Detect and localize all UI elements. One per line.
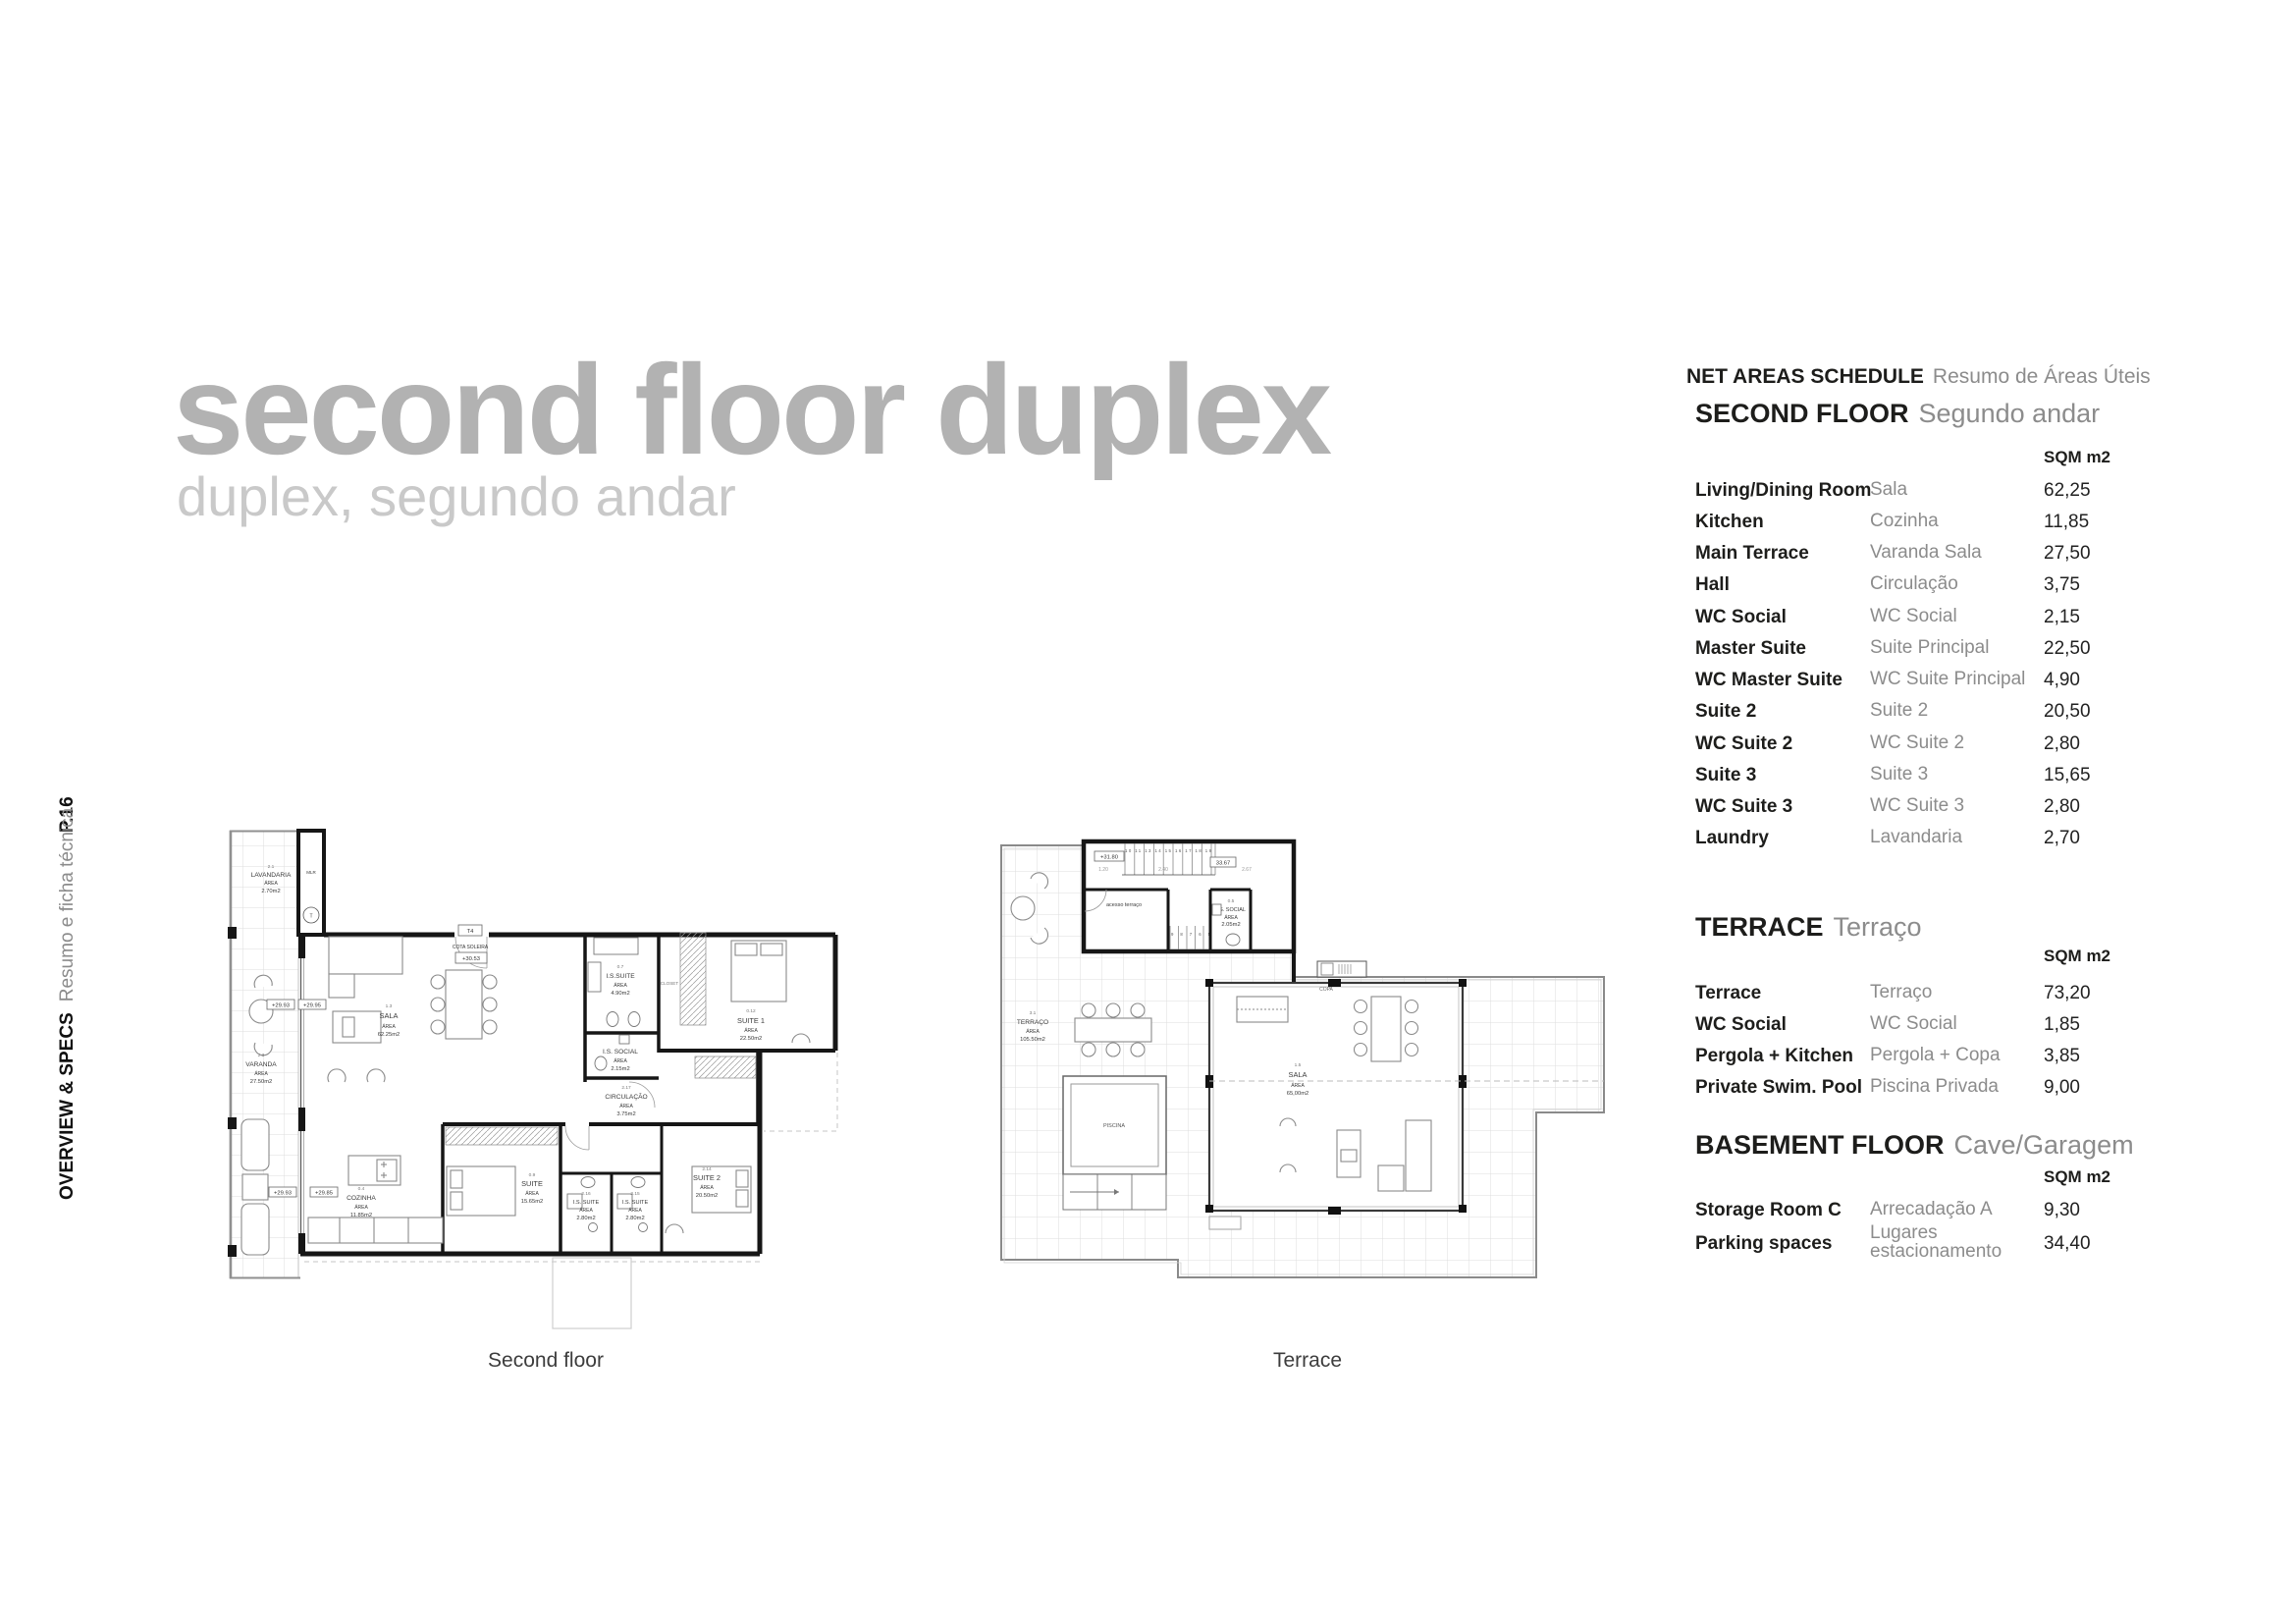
row-value: 3,75 — [2044, 574, 2080, 596]
row-label-en: Kitchen — [1695, 512, 1764, 533]
row-label-en: Suite 3 — [1695, 765, 1756, 786]
room-code: 0.4 — [358, 1186, 365, 1192]
room-area-word: ÁREA — [354, 1204, 368, 1211]
room-code: 3.1 — [1030, 1010, 1037, 1016]
table-row: Pergola + KitchenPergola + Copa3,85 — [1695, 1046, 2132, 1069]
table-row: WC Suite 3WC Suite 32,80 — [1695, 796, 2132, 820]
room-area-word: ÁREA — [614, 1057, 627, 1064]
plan-caption-second-floor: Second floor — [222, 1349, 870, 1373]
drain — [589, 1223, 598, 1232]
armchair — [367, 1069, 385, 1082]
room-code: 0.12 — [746, 1008, 756, 1014]
room-code: 2.15 — [630, 1191, 640, 1197]
row-value: 9,00 — [2044, 1077, 2080, 1099]
level-mark: +29.93 — [274, 1191, 292, 1197]
lounger — [241, 1119, 269, 1170]
section-title-pt: Terraço — [1834, 912, 1922, 942]
room-area-value: 62.25m2 — [378, 1032, 400, 1038]
room-area-value: 4.90m2 — [611, 991, 629, 997]
row-value: 22,50 — [2044, 638, 2091, 660]
sideboard — [333, 1011, 381, 1043]
dining-table — [446, 970, 482, 1039]
row-label-pt: WC Suite 2 — [1870, 733, 2035, 752]
room-name: I.S. SOCIAL — [603, 1049, 638, 1056]
row-value: 9,30 — [2044, 1200, 2080, 1221]
typology-mark: T4 — [467, 929, 475, 935]
section-title-terrace: TERRACETerraço — [1695, 912, 1922, 943]
armchair — [792, 1034, 810, 1043]
table-row: Suite 3Suite 315,65 — [1695, 765, 2132, 788]
row-value: 11,85 — [2044, 512, 2089, 533]
page-subtitle: duplex, segundo andar — [177, 469, 736, 524]
toilet — [581, 1177, 595, 1188]
row-label-pt: Arrecadação A — [1870, 1200, 2035, 1218]
sink — [1212, 904, 1221, 915]
dimension-mark: 33.67 — [1216, 861, 1231, 867]
room-area-value: 20.50m2 — [696, 1193, 719, 1199]
lounge-table — [1011, 896, 1035, 920]
level-mark: +29.93 — [272, 1003, 290, 1009]
room-area-word: ÁREA — [254, 1070, 268, 1077]
laundry-block: T MLR — [298, 831, 324, 935]
doormat — [1209, 1217, 1241, 1229]
terrace-plan-drawing: 10 11 13 14 15 16 17 18 19 9 8 7 6 5 +31… — [993, 828, 1622, 1289]
room-name: SUITE 1 — [737, 1016, 765, 1025]
table-row: LaundryLavandaria2,70 — [1695, 828, 2132, 851]
room-area-value: 105.50m2 — [1020, 1037, 1045, 1043]
row-label-en: Main Terrace — [1695, 543, 1809, 565]
room-area-word: ÁREA — [744, 1027, 758, 1034]
row-value: 2,80 — [2044, 796, 2080, 818]
room-area-word: ÁREA — [700, 1184, 714, 1191]
closet-label: CLOSET — [661, 981, 679, 986]
water-heater-label: T — [309, 914, 312, 920]
table-row: WC Suite 2WC Suite 22,80 — [1695, 733, 2132, 757]
row-label-pt: Lugares estacionamento — [1870, 1223, 2035, 1261]
room-name: TERRAÇO — [1017, 1019, 1048, 1026]
room-area-word: ÁREA — [579, 1207, 593, 1214]
room-area-word: ÁREA — [382, 1023, 396, 1030]
row-label-pt: Sala — [1870, 480, 2035, 499]
level-mark: +29.85 — [315, 1191, 333, 1197]
room-area-value: 2.05m2 — [1221, 922, 1240, 928]
table-row: Suite 2Suite 220,50 — [1695, 701, 2132, 725]
row-value: 4,90 — [2044, 670, 2080, 691]
cota-soleira-label: COTA SOLEIRA — [453, 945, 489, 950]
section-title-basement: BASEMENT FLOORCave/Garagem — [1695, 1130, 2134, 1161]
room-name: SALA — [1289, 1070, 1308, 1079]
room-area-value: 3.75m2 — [616, 1111, 635, 1117]
row-label-pt: Circulação — [1870, 574, 2035, 593]
room-area-value: 11.85m2 — [350, 1213, 372, 1218]
toilet — [631, 1177, 645, 1188]
schedule-header: NET AREAS SCHEDULEResumo de Áreas Úteis — [1686, 365, 2151, 389]
room-area-value: 2.80m2 — [625, 1216, 644, 1221]
row-value: 1,85 — [2044, 1014, 2080, 1036]
table-row: Main TerraceVaranda Sala27,50 — [1695, 543, 2132, 567]
row-label-en: WC Social — [1695, 607, 1787, 628]
row-label-en: Parking spaces — [1695, 1223, 1832, 1255]
sidebar-section-pt: Resumo e ficha técnica — [57, 808, 78, 1002]
room-code: 2.14 — [702, 1166, 712, 1172]
section-title-en: BASEMENT FLOOR — [1695, 1130, 1945, 1160]
sidebar-section-label: OVERVIEW & SPECSResumo e ficha técnica — [57, 808, 79, 1200]
kitchen-counter — [308, 1218, 443, 1243]
row-label-pt: Suite Principal — [1870, 638, 2035, 657]
glass-wall — [298, 935, 305, 1254]
unit-label: SQM m2 — [2044, 947, 2110, 966]
row-label-en: Pergola + Kitchen — [1695, 1046, 1853, 1067]
brochure-page: { "page": {"number": "P.16", "section_en… — [0, 0, 2296, 1624]
room-area-word: ÁREA — [1026, 1028, 1040, 1035]
sink — [619, 1035, 629, 1044]
row-label-en: Suite 2 — [1695, 701, 1756, 723]
stair-numbers-lower: 9 8 7 6 5 — [1171, 932, 1211, 937]
row-label-en: Terrace — [1695, 983, 1761, 1004]
drain — [639, 1223, 648, 1232]
room-code: 0.5 — [1228, 898, 1235, 904]
room-name: VARANDA — [245, 1061, 277, 1068]
room-code: 2.17 — [621, 1085, 631, 1091]
room-name: I.S.SUITE — [606, 973, 635, 980]
room-name: SUITE 2 — [693, 1173, 721, 1182]
dimension: 1.20 — [1098, 867, 1108, 873]
net-areas-schedule: NET AREAS SCHEDULEResumo de Áreas Úteis … — [1695, 363, 2132, 1296]
table-row: Master SuiteSuite Principal22,50 — [1695, 638, 2132, 662]
row-label-en: Hall — [1695, 574, 1730, 596]
table-row: HallCirculação3,75 — [1695, 574, 2132, 598]
sofa-chaise — [329, 974, 354, 998]
sofa — [329, 937, 402, 974]
row-label-pt: Cozinha — [1870, 512, 2035, 530]
room-code: 0.7 — [617, 964, 624, 970]
toilet — [1226, 934, 1240, 946]
stair-numbers-upper: 10 11 13 14 15 16 17 18 19 — [1125, 848, 1212, 853]
room-area-value: 27.50m2 — [250, 1079, 273, 1085]
row-value: 15,65 — [2044, 765, 2091, 786]
toilet — [595, 1056, 607, 1070]
table-row: Storage Room CArrecadação A9,30 — [1695, 1200, 2132, 1223]
porch-outline — [553, 1258, 631, 1328]
balcony-chair — [254, 975, 272, 988]
level-mark: +31.80 — [1100, 855, 1118, 861]
row-label-en: Living/Dining Room — [1695, 480, 1871, 502]
row-label-en: WC Suite 3 — [1695, 796, 1792, 818]
pool-label: PISCINA — [1103, 1123, 1125, 1129]
row-label-en: WC Suite 2 — [1695, 733, 1792, 755]
row-label-pt: Suite 2 — [1870, 701, 2035, 720]
bathtub — [594, 938, 638, 954]
room-name: LAVANDARIA — [251, 872, 292, 879]
row-label-pt: WC Social — [1870, 607, 2035, 625]
bidet — [628, 1012, 640, 1027]
row-value: 3,85 — [2044, 1046, 2080, 1067]
row-label-pt: Piscina Privada — [1870, 1077, 2035, 1096]
row-label-pt: WC Suite Principal — [1870, 670, 2035, 688]
sofa — [1406, 1120, 1431, 1191]
table-row: Living/Dining RoomSala62,25 — [1695, 480, 2132, 504]
stair-access-label: acesso terraço — [1106, 902, 1142, 908]
section-title-pt: Cave/Garagem — [1954, 1130, 2134, 1160]
table-row: WC SocialWC Social2,15 — [1695, 607, 2132, 630]
table-row: TerraceTerraço73,20 — [1695, 983, 2132, 1006]
row-value: 20,50 — [2044, 701, 2091, 723]
unit-label: SQM m2 — [2044, 448, 2110, 467]
dining-table — [1371, 997, 1401, 1061]
toilet — [607, 1012, 618, 1027]
room-name: I.S. SUITE — [622, 1200, 649, 1206]
table-row: WC SocialWC Social1,85 — [1695, 1014, 2132, 1038]
room-name: SALA — [380, 1011, 399, 1020]
room-area-word: ÁREA — [1224, 914, 1238, 921]
room-code: 2.16 — [581, 1191, 591, 1197]
room-code: 2.3 — [258, 1053, 265, 1058]
row-label-en: Master Suite — [1695, 638, 1806, 660]
section-title-second-floor: SECOND FLOORSegundo andar — [1695, 399, 2100, 429]
row-label-en: Laundry — [1695, 828, 1769, 849]
armchair — [328, 1069, 346, 1082]
level-mark: +30.53 — [462, 956, 480, 962]
second-floor-plan-drawing: T MLR — [222, 825, 870, 1339]
room-name: I.S. SUITE — [573, 1200, 600, 1206]
row-label-pt: Pergola + Copa — [1870, 1046, 2035, 1064]
table-row: WC Master SuiteWC Suite Principal4,90 — [1695, 670, 2132, 693]
row-value: 34,40 — [2044, 1223, 2091, 1255]
plan-caption-terrace: Terrace — [993, 1349, 1622, 1373]
dimension: 2.40 — [1158, 867, 1168, 873]
section-title-en: TERRACE — [1695, 912, 1824, 942]
row-label-en: WC Social — [1695, 1014, 1787, 1036]
stove — [377, 1160, 397, 1181]
pergola-kitchen-unit — [1317, 961, 1366, 977]
terrace-plan: 10 11 13 14 15 16 17 18 19 9 8 7 6 5 +31… — [993, 828, 1622, 1289]
room-code: 1.5 — [1295, 1062, 1302, 1068]
room-area-value: 15.65m2 — [521, 1199, 544, 1205]
lounger — [241, 1204, 269, 1255]
room-name: CIRCULAÇÃO — [605, 1092, 647, 1101]
section-title-en: SECOND FLOOR — [1695, 399, 1909, 428]
section-title-pt: Segundo andar — [1919, 399, 2101, 428]
row-value: 27,50 — [2044, 543, 2091, 565]
row-label-pt: WC Suite 3 — [1870, 796, 2035, 815]
table-row: Private Swim. PoolPiscina Privada9,00 — [1695, 1077, 2132, 1101]
room-area-value: 2.15m2 — [611, 1066, 629, 1072]
outdoor-dining-table — [1075, 1018, 1151, 1042]
sidebar-section-en: OVERVIEW & SPECS — [57, 1012, 78, 1200]
row-value: 62,25 — [2044, 480, 2091, 502]
table-row: KitchenCozinha11,85 — [1695, 512, 2132, 535]
sofa-chaise — [1378, 1165, 1404, 1191]
row-label-en: Storage Room C — [1695, 1200, 1842, 1221]
copa-label: COPA — [1319, 987, 1333, 993]
unit-label: SQM m2 — [2044, 1167, 2110, 1187]
second-floor-plan: T MLR — [222, 825, 870, 1339]
room-area-word: ÁREA — [525, 1190, 539, 1197]
row-label-en: Private Swim. Pool — [1695, 1077, 1862, 1099]
room-area-value: 2.70m2 — [261, 889, 280, 894]
row-label-en: WC Master Suite — [1695, 670, 1842, 691]
schedule-header-en: NET AREAS SCHEDULE — [1686, 365, 1924, 388]
room-area-value: 65,00m2 — [1287, 1091, 1309, 1097]
table-row: Parking spacesLugares estacionamento34,4… — [1695, 1223, 2132, 1247]
row-label-pt: WC Social — [1870, 1014, 2035, 1033]
room-area-word: ÁREA — [614, 982, 627, 989]
room-area-word: ÁREA — [264, 880, 278, 887]
room-code: 0.9 — [529, 1172, 536, 1178]
room-area-word: ÁREA — [628, 1207, 642, 1214]
furniture — [241, 937, 810, 1255]
room-code: 1.3 — [386, 1003, 393, 1009]
side-table — [242, 1174, 268, 1200]
private-pool: PISCINA — [1063, 1076, 1166, 1210]
row-value: 73,20 — [2044, 983, 2091, 1004]
room-area-word: ÁREA — [619, 1103, 633, 1110]
mlr-label: MLR — [306, 870, 316, 875]
page-title: second floor duplex — [173, 346, 1329, 473]
room-name: SUITE — [521, 1179, 543, 1188]
room-name: COZINHA — [347, 1195, 376, 1202]
vanity — [588, 962, 601, 992]
row-label-pt: Lavandaria — [1870, 828, 2035, 846]
row-value: 2,80 — [2044, 733, 2080, 755]
bath-fixtures — [567, 938, 648, 1232]
room-area-value: 2.80m2 — [576, 1216, 595, 1221]
room-area-value: 22.50m2 — [740, 1036, 763, 1042]
row-label-pt: Suite 3 — [1870, 765, 2035, 784]
room-code: 2.1 — [268, 864, 275, 870]
room-area-word: ÁREA — [1291, 1082, 1305, 1089]
schedule-header-pt: Resumo de Áreas Úteis — [1933, 365, 2151, 388]
row-value: 2,15 — [2044, 607, 2080, 628]
row-value: 2,70 — [2044, 828, 2080, 849]
dimension: 2.67 — [1242, 867, 1252, 873]
level-mark: +29.95 — [303, 1003, 321, 1009]
row-label-pt: Terraço — [1870, 983, 2035, 1001]
armchair — [666, 1224, 683, 1233]
row-label-pt: Varanda Sala — [1870, 543, 2035, 562]
